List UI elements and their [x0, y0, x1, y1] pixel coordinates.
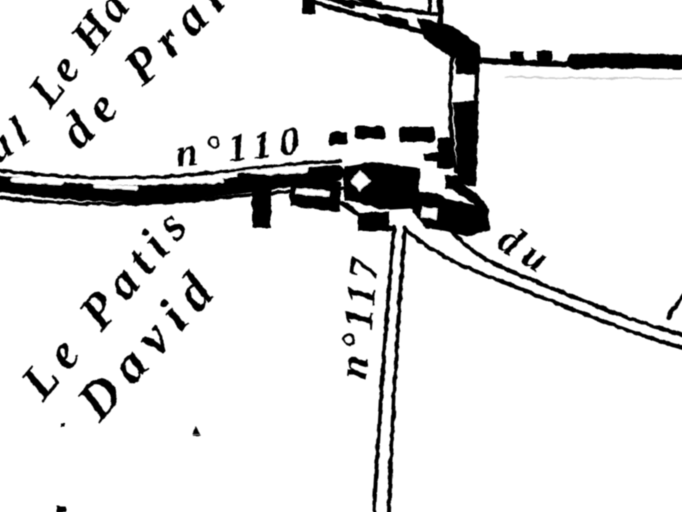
svg-text:al: al [0, 103, 45, 172]
svg-text:n°117: n°117 [330, 251, 389, 381]
svg-text:du: du [490, 215, 565, 286]
